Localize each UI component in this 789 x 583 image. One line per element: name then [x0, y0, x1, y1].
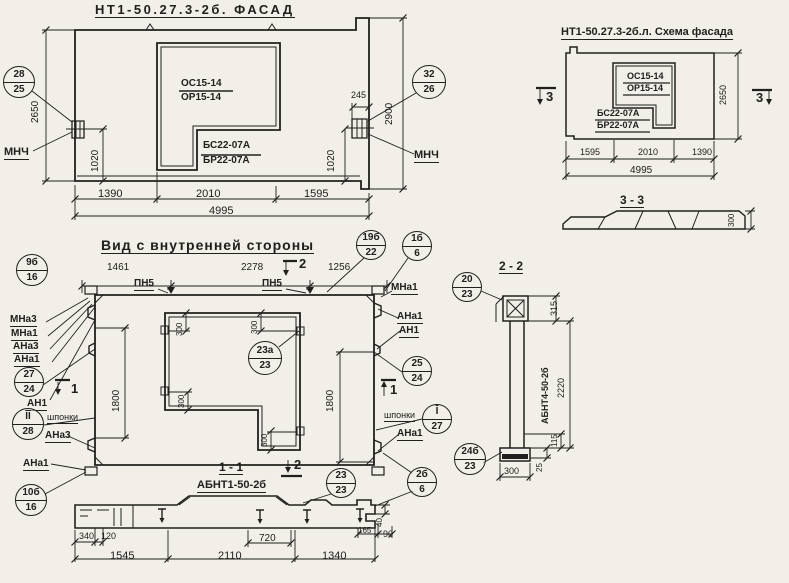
schema-sill-mark-top: БС22-07А [597, 109, 639, 118]
inner-dim-1461: 1461 [107, 263, 129, 273]
callout-9b-16: 9б16 [16, 254, 48, 286]
facade-dim-1020-right: 1020 [327, 150, 337, 172]
callout-25-24-denominator: 24 [403, 372, 431, 384]
section2-marker-bottom: 2 [294, 458, 301, 471]
callout-10b-16-numerator: 10б [16, 487, 46, 501]
callout-23-23: 2323 [326, 468, 356, 498]
callout-24b-23-numerator: 24б [455, 446, 485, 460]
inner-dim-300-tr: 300 [251, 321, 259, 334]
callout-9b-16-denominator: 16 [17, 271, 47, 283]
callout-23-23-numerator: 23 [327, 470, 355, 484]
section1-marker-right: 1 [390, 383, 397, 396]
section33-dim-300: 300 [728, 214, 736, 227]
abnt1-label: АБНТ1-50-2б [197, 480, 266, 493]
section22-title: 2 - 2 [499, 260, 523, 274]
callout-23-23-denominator: 23 [327, 484, 355, 496]
ana1-label-right-2: АНа1 [397, 429, 423, 441]
s11-dim-1340: 1340 [322, 551, 346, 562]
schema-title: НТ1-50.27.3-2б.л. Схема фасада [561, 27, 733, 40]
callout-25-24: 2524 [402, 356, 432, 386]
callout-II-28: II28 [12, 408, 44, 440]
schema-window-mark-top: ОС15-14 [627, 72, 664, 81]
callout-19b-22-numerator: 19б [357, 232, 385, 246]
callout-2b-6: 2б6 [407, 467, 437, 497]
schema-dim-4995: 4995 [630, 166, 652, 176]
facade-sill-mark-top: БС22-07А [203, 141, 250, 151]
inner-view-title: Вид с внутренней стороны [101, 238, 314, 254]
inner-dim-300-ml: 300 [178, 395, 186, 408]
s11-dim-1545: 1545 [110, 551, 134, 562]
ana3-label-left-2: АНа3 [45, 431, 71, 443]
callout-19b-22-denominator: 22 [357, 246, 385, 258]
shponki-label-right: шпонки [384, 411, 415, 422]
callout-10b-16-denominator: 16 [16, 501, 46, 513]
callout-1b-6-numerator: 1б [403, 233, 431, 247]
ana1-label-left-2: АНа1 [23, 459, 49, 471]
callout-I-27-numerator: I [423, 406, 451, 420]
inner-dim-1256: 1256 [328, 263, 350, 273]
schema-dim-2010: 2010 [638, 148, 658, 157]
facade-window-mark-bottom: ОР15-14 [181, 93, 221, 103]
s11-dim-720: 720 [259, 534, 276, 544]
inner-dim-1800-left: 1800 [112, 390, 122, 412]
facade-window-mark-top: ОС15-14 [181, 79, 222, 89]
an1-label-right: АН1 [399, 326, 419, 338]
schema-sill-mark-bottom: БР22-07А [597, 121, 639, 130]
callout-20-23: 2023 [452, 272, 482, 302]
s22-dim-25: 25 [536, 463, 544, 472]
facade-sill-mark-bottom: БР22-07А [203, 156, 250, 166]
s11-dim-120: 120 [101, 532, 116, 541]
facade-title: НТ1-50.27.3-2б. ФАСАД [95, 3, 295, 18]
abnt4-label: АБНТ4-50-2б [541, 367, 550, 424]
s11-dim-2110: 2110 [218, 551, 242, 562]
callout-27-24-numerator: 27 [15, 369, 43, 383]
ana1-label-left: АНа1 [14, 355, 40, 367]
pn5-label-left: ПН5 [134, 279, 154, 291]
callout-20-23-denominator: 23 [453, 288, 481, 300]
callout-II-28-numerator: II [13, 411, 43, 425]
inner-dim-1800-right: 1800 [326, 390, 336, 412]
shponki-label-left: шпонки [47, 413, 78, 424]
callout-20-23-numerator: 20 [453, 274, 481, 288]
detail-lines [66, 24, 699, 528]
facade-dim-1595: 1595 [304, 189, 328, 200]
callout-32-26-denominator: 26 [413, 83, 445, 95]
callout-9b-16-numerator: 9б [17, 257, 47, 271]
schema-dim-1595: 1595 [580, 148, 600, 157]
s11-dim-90: 90 [383, 530, 393, 539]
s22-dim-300: 300 [504, 467, 519, 476]
callout-I-27-denominator: 27 [423, 420, 451, 432]
facade-dim-1390: 1390 [98, 189, 122, 200]
callout-27-24: 2724 [14, 367, 44, 397]
inner-dim-2278: 2278 [241, 263, 263, 273]
inner-dim-300-tl: 300 [176, 323, 184, 336]
facade-dim-2010: 2010 [196, 189, 220, 200]
inner-dim-300-bl: 300 [261, 434, 269, 447]
facade-insert-label-right: МНЧ [414, 150, 439, 163]
mna1-label-top-right: МНа1 [391, 283, 418, 295]
section11-title: 1 - 1 [219, 461, 243, 475]
callout-28-25-numerator: 28 [4, 69, 34, 83]
blueprint-sheet: НТ1-50.27.3-2б. ФАСАДОС15-14ОР15-14БС22-… [0, 0, 789, 583]
facade-dim-4995: 4995 [209, 206, 233, 217]
section2-marker-top: 2 [299, 257, 306, 270]
s22-dim-315: 315 [550, 301, 559, 316]
callout-1b-6: 1б6 [402, 231, 432, 261]
callout-1b-6-denominator: 6 [403, 247, 431, 259]
callout-32-26-numerator: 32 [413, 69, 445, 83]
s11-dim-165: 165 [358, 527, 371, 535]
callout-23a-23: 23а23 [248, 341, 282, 375]
callout-2b-6-denominator: 6 [408, 483, 436, 495]
facade-dim-245: 245 [351, 91, 366, 100]
schema-window-mark-bottom: ОР15-14 [627, 84, 663, 93]
pn5-label-right: ПН5 [262, 279, 282, 291]
callout-19b-22: 19б22 [356, 230, 386, 260]
schema-dim-2650: 2650 [719, 85, 728, 105]
facade-dim-2900: 2900 [385, 103, 395, 125]
callout-32-26: 3226 [412, 65, 446, 99]
schema-dim-1390: 1390 [692, 148, 712, 157]
callout-24b-23-denominator: 23 [455, 460, 485, 472]
mna3-label-left: МНа3 [10, 315, 37, 327]
facade-insert-label-left: МНЧ [4, 147, 29, 160]
ana3-label-left: АНа3 [13, 342, 39, 354]
callout-24b-23: 24б23 [454, 443, 486, 475]
s22-dim-2220: 2220 [557, 378, 566, 398]
callout-23a-23-denominator: 23 [249, 359, 281, 371]
section3-marker-right: 3 [756, 91, 763, 104]
s22-dim-115: 115 [551, 434, 559, 447]
callout-23a-23-numerator: 23а [249, 345, 281, 359]
s11-dim-40: 40 [376, 518, 384, 527]
section33-title: 3 - 3 [620, 194, 644, 208]
section1-marker-left: 1 [71, 382, 78, 395]
mna1-label-left: МНа1 [11, 329, 38, 341]
callout-II-28-denominator: 28 [13, 425, 43, 437]
facade-dim-1020-left: 1020 [91, 150, 101, 172]
callout-I-27: I27 [422, 404, 452, 434]
callout-2b-6-numerator: 2б [408, 469, 436, 483]
callout-25-24-numerator: 25 [403, 358, 431, 372]
ana1-label-right: АНа1 [397, 312, 423, 324]
callout-27-24-denominator: 24 [15, 383, 43, 395]
callout-10b-16: 10б16 [15, 484, 47, 516]
callout-28-25-denominator: 25 [4, 83, 34, 95]
s11-dim-340: 340 [79, 532, 94, 541]
facade-dim-2650: 2650 [31, 101, 41, 123]
callout-28-25: 2825 [3, 66, 35, 98]
section3-marker-left: 3 [546, 90, 553, 103]
